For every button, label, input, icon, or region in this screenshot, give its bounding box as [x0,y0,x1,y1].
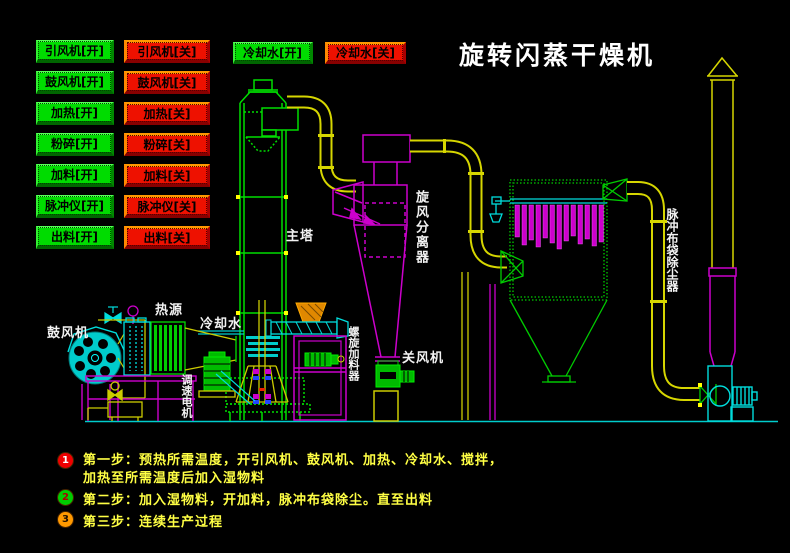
step2-text: 第二步：加入湿物料，开加料，脉冲布袋除尘。直至出料 [83,489,433,508]
label-blower: 鼓风机 [47,327,89,340]
step3-badge: 3 [57,511,74,528]
feeding-off-button[interactable]: 加料[关] [124,164,210,187]
fan-induced-on-button[interactable]: 引风机[开] [36,40,114,63]
label-main-tower: 主塔 [286,230,314,243]
step1-text-line1: 第一步：预热所需温度，开引风机、鼓风机、加热、冷却水、搅拌， [83,449,503,468]
pulse-off-button[interactable]: 脉冲仪[关] [124,195,210,218]
label-screw-feeder: 螺旋加料器 [348,326,359,381]
pipe-bagfilter-to-fan [627,188,700,394]
fan-blower-off-button[interactable]: 鼓风机[关] [124,71,210,94]
crusher-off-button[interactable]: 粉碎[关] [124,133,210,156]
label-speed-motor: 调速电机 [181,374,192,418]
step1-badge: 1 [57,452,74,469]
label-bag-filter: 脉冲布袋除尘器 [666,208,678,292]
step1-text-line2: 加热至所需温度后加入湿物料 [83,467,265,486]
step3-text: 第三步：连续生产过程 [83,511,223,530]
cooling-water-on-button[interactable]: 冷却水[开] [233,42,313,64]
filter-bags [515,205,604,249]
agitator-bearings [253,369,271,404]
heating-on-button[interactable]: 加热[开] [36,102,114,125]
heating-off-button[interactable]: 加热[关] [124,102,210,125]
step2-badge: 2 [57,489,74,506]
heat-exchanger [124,318,150,375]
fan-induced-off-button[interactable]: 引风机[关] [124,40,210,63]
page-title: 旋转闪蒸干燥机 [459,36,655,72]
fan-blower-on-button[interactable]: 鼓风机[开] [36,71,114,94]
drain-pipe-assembly [88,382,142,421]
label-rotary-valve: 关风机 [402,352,444,365]
pressure-gauge [128,306,138,324]
pulse-valve [490,197,510,222]
feeding-on-button[interactable]: 加料[开] [36,164,114,187]
pipe-supports [462,272,495,420]
exhaust-stack [707,58,738,268]
label-heat-source: 热源 [155,304,183,317]
stack-lower-section [709,268,736,366]
label-cyclone: 旋风分离器 [414,190,427,265]
pulse-on-button[interactable]: 脉冲仪[开] [36,195,114,218]
label-cooling-water: 冷却水 [200,318,242,331]
discharge-off-button[interactable]: 出料[关] [124,226,210,249]
rotary-valve [374,361,414,421]
cooling-jacket-fins [246,336,280,357]
discharge-on-button[interactable]: 出料[开] [36,226,114,249]
crusher-on-button[interactable]: 粉碎[开] [36,133,114,156]
cooling-water-off-button[interactable]: 冷却水[关] [325,42,406,64]
hmi-screen: 旋转闪蒸干燥机 引风机[开] 鼓风机[开] 加热[开] 粉碎[开] 加料[开] … [0,0,790,553]
